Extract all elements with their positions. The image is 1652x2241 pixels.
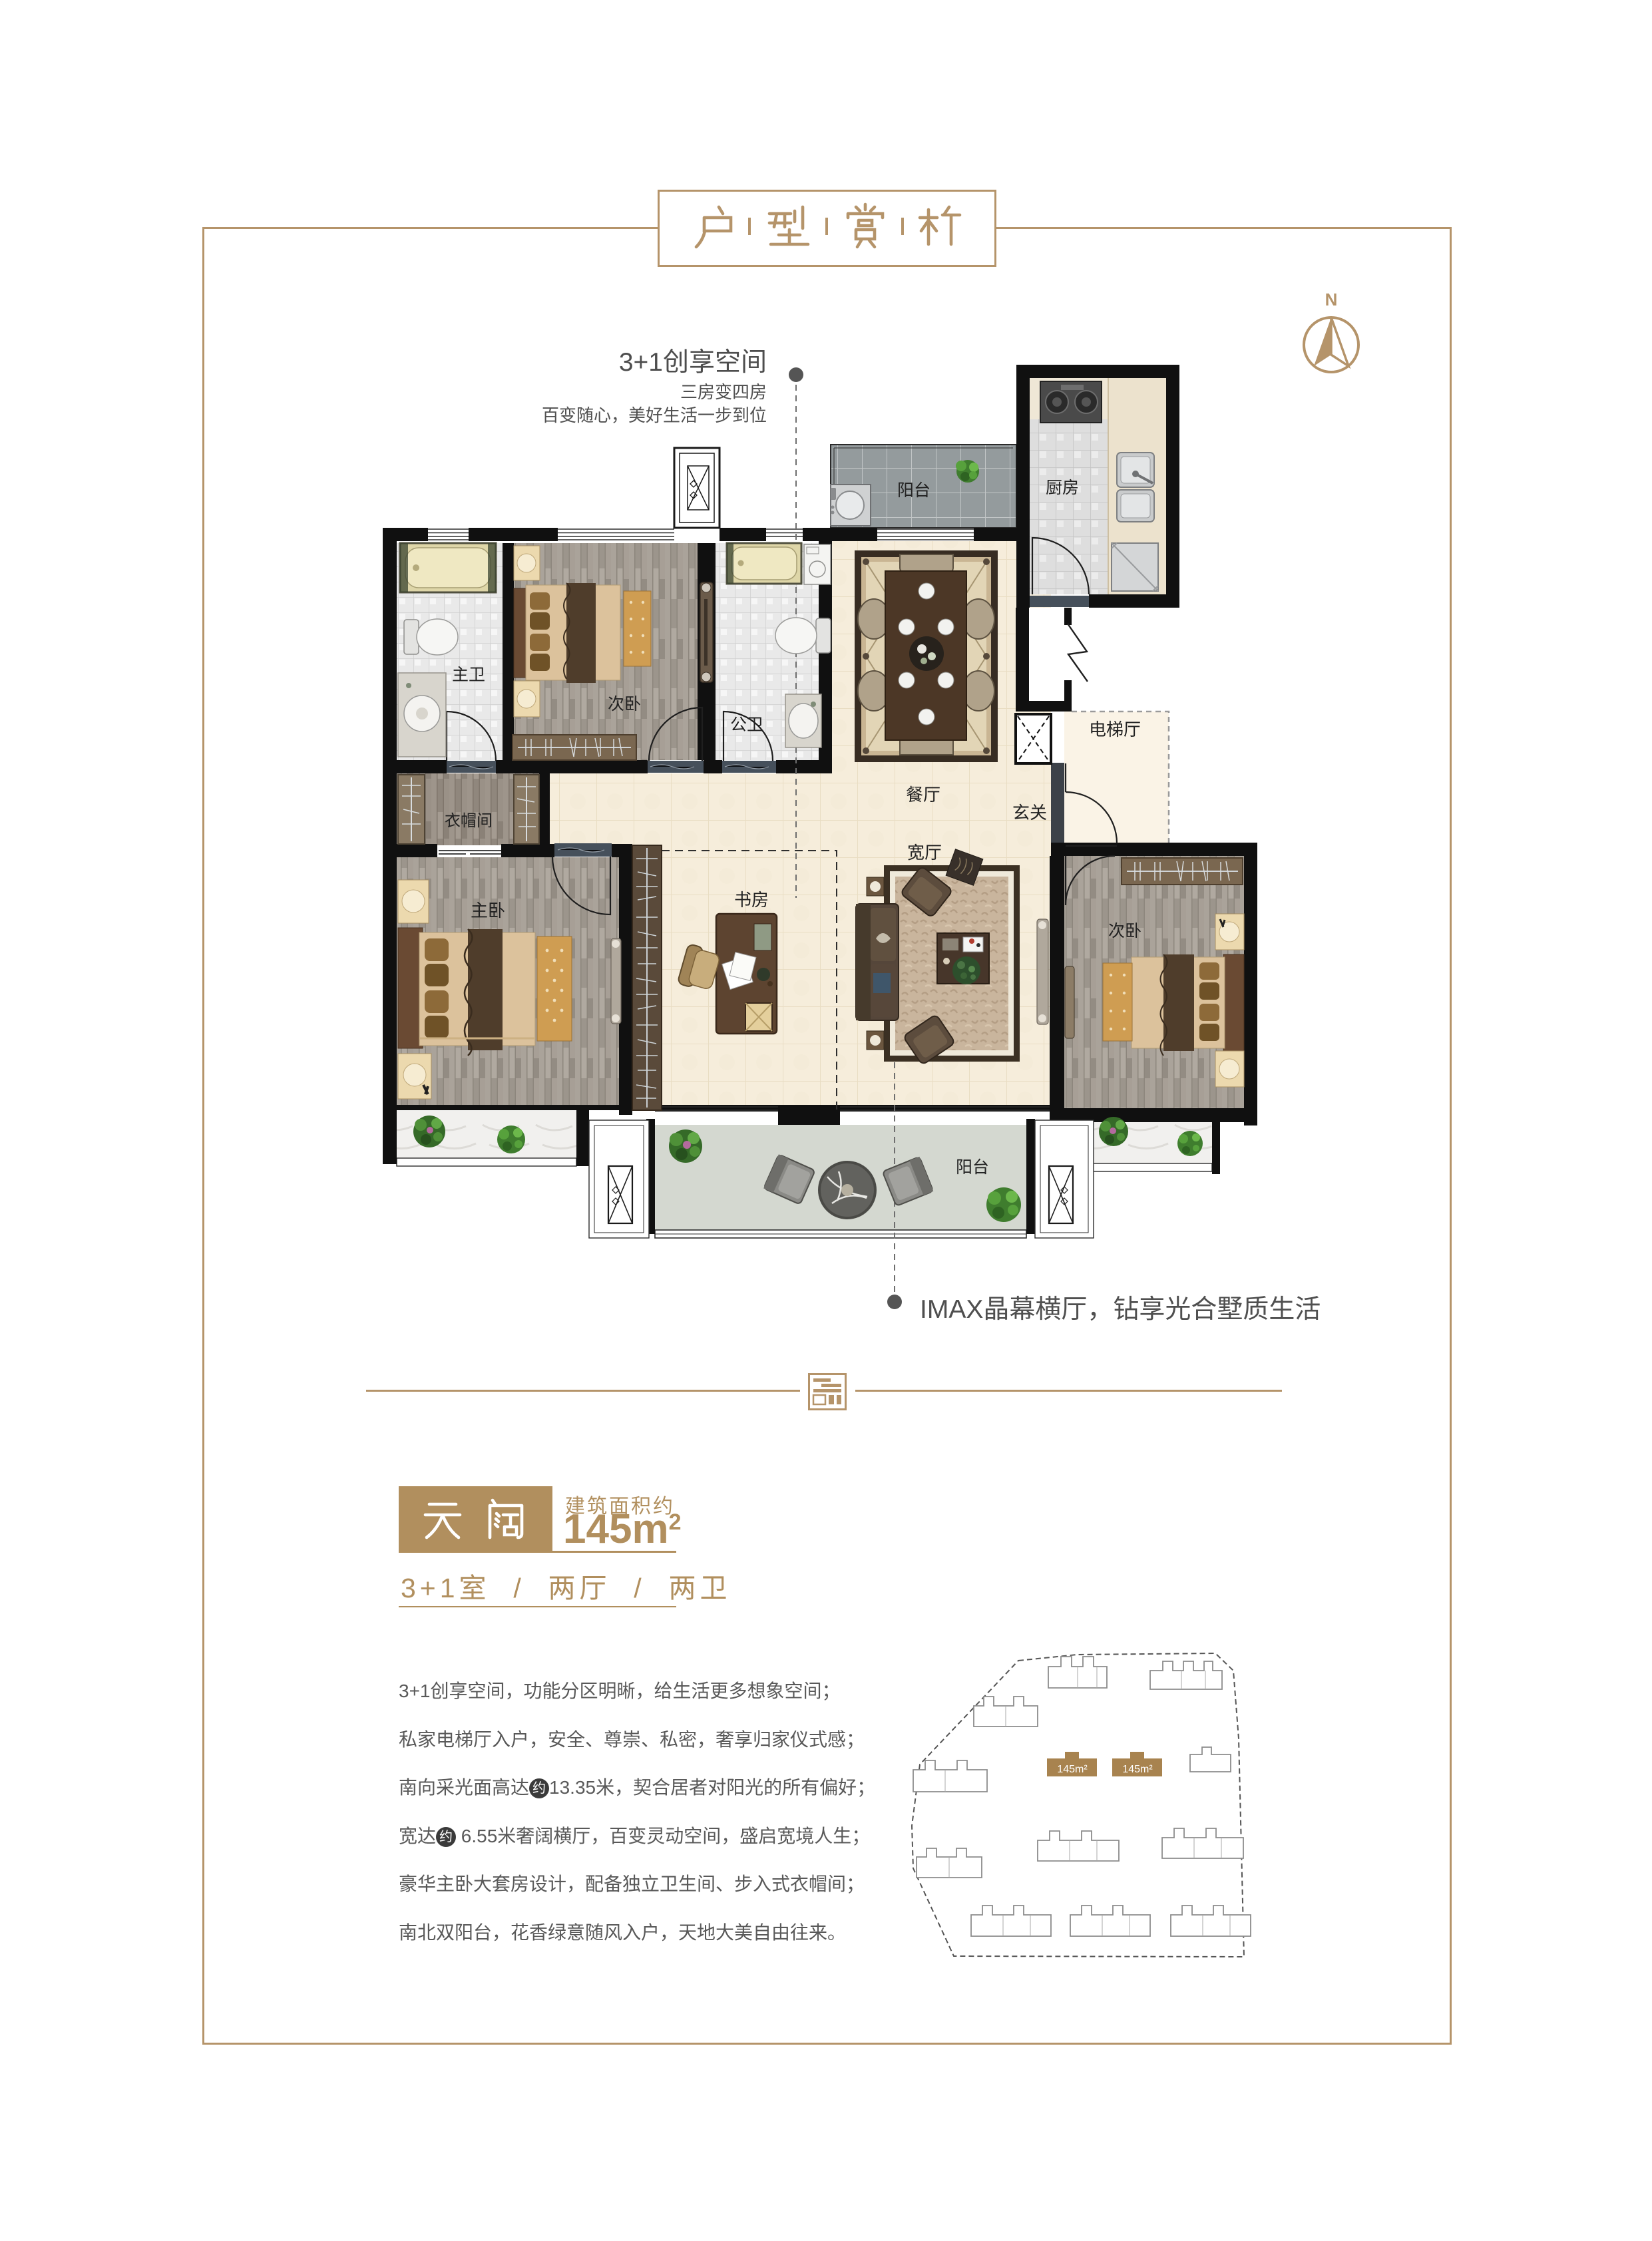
svg-text:公卫: 公卫 <box>730 715 763 734</box>
svg-text:玄关: 玄关 <box>1012 803 1047 823</box>
svg-text:次卧: 次卧 <box>608 695 641 713</box>
svg-text:书房: 书房 <box>734 890 769 910</box>
svg-text:餐厅: 餐厅 <box>906 785 940 805</box>
svg-text:主卧: 主卧 <box>471 901 505 920</box>
svg-text:阳台: 阳台 <box>956 1158 989 1177</box>
svg-text:次卧: 次卧 <box>1108 922 1141 940</box>
svg-text:145m²: 145m² <box>1122 1764 1153 1775</box>
svg-text:厨房: 厨房 <box>1046 479 1079 497</box>
svg-text:N: N <box>1325 290 1338 309</box>
svg-text:主卫: 主卫 <box>452 666 485 684</box>
svg-text:电梯厅: 电梯厅 <box>1089 719 1141 739</box>
svg-text:145m²: 145m² <box>1057 1764 1088 1775</box>
svg-text:宽厅: 宽厅 <box>907 843 942 863</box>
svg-text:衣帽间: 衣帽间 <box>445 812 493 830</box>
svg-text:阳台: 阳台 <box>897 481 930 500</box>
